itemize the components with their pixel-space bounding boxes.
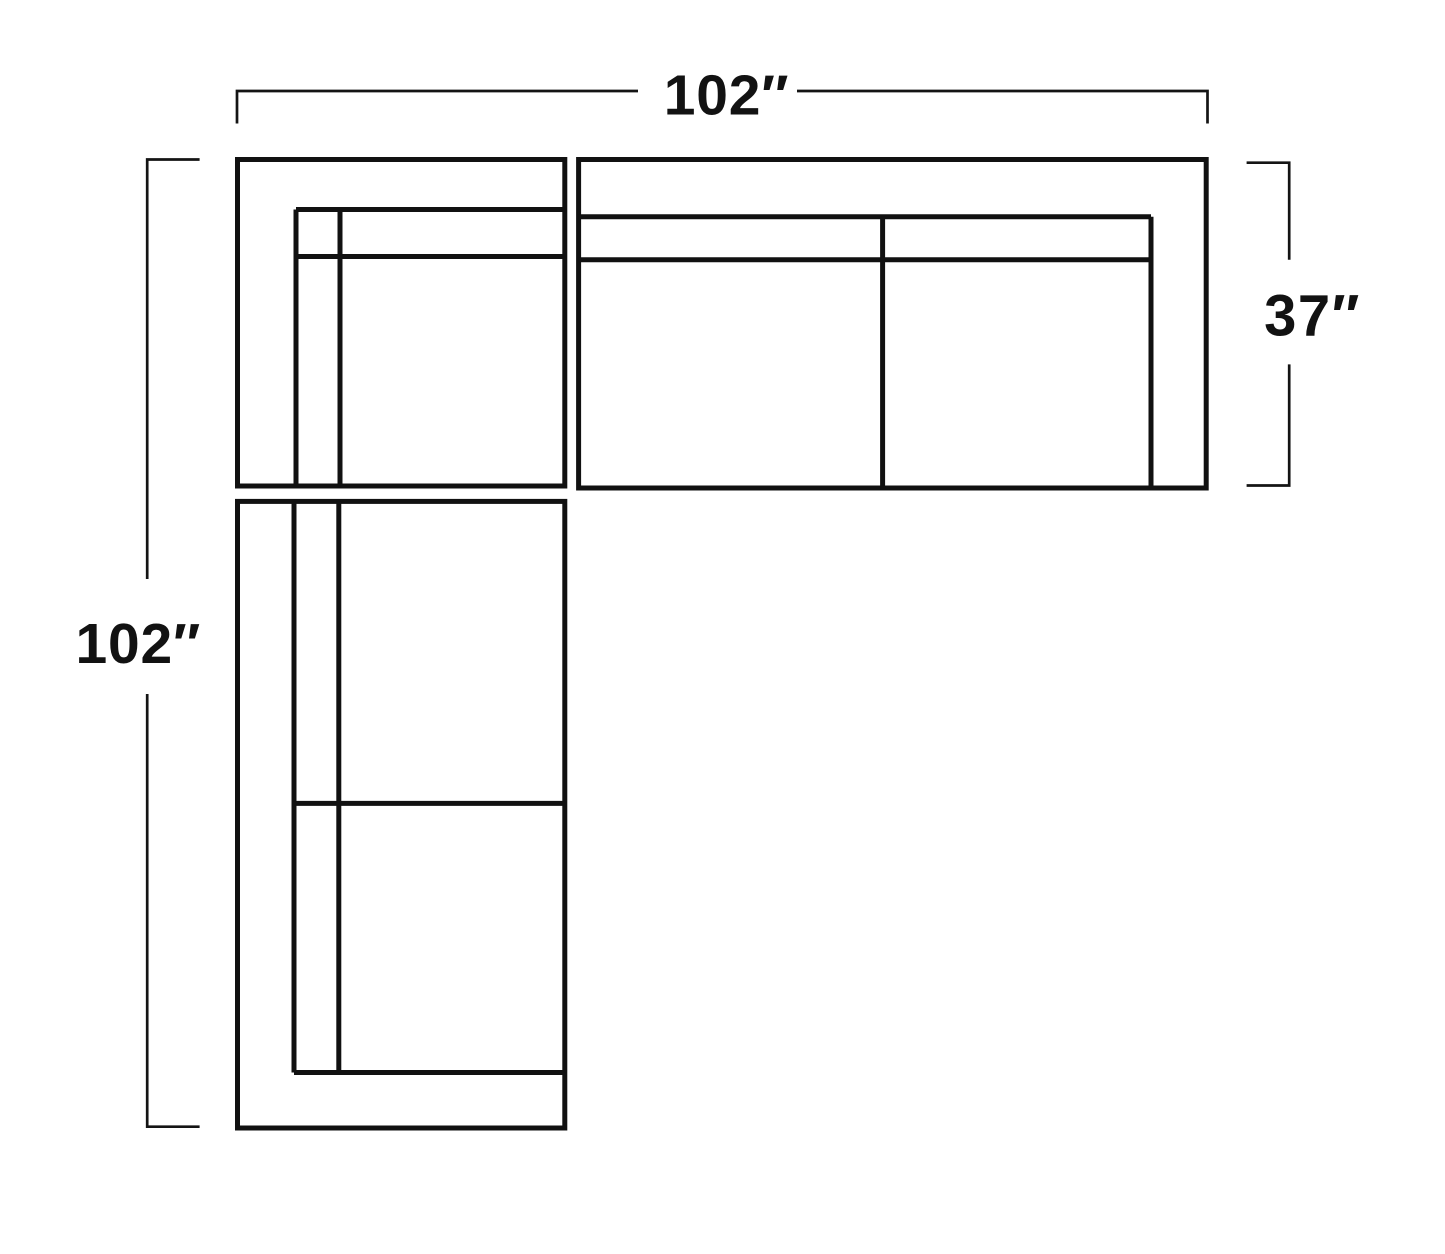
svg-text:37″: 37″	[1264, 284, 1361, 349]
svg-text:102″: 102″	[75, 612, 201, 676]
svg-text:102″: 102″	[664, 64, 790, 128]
